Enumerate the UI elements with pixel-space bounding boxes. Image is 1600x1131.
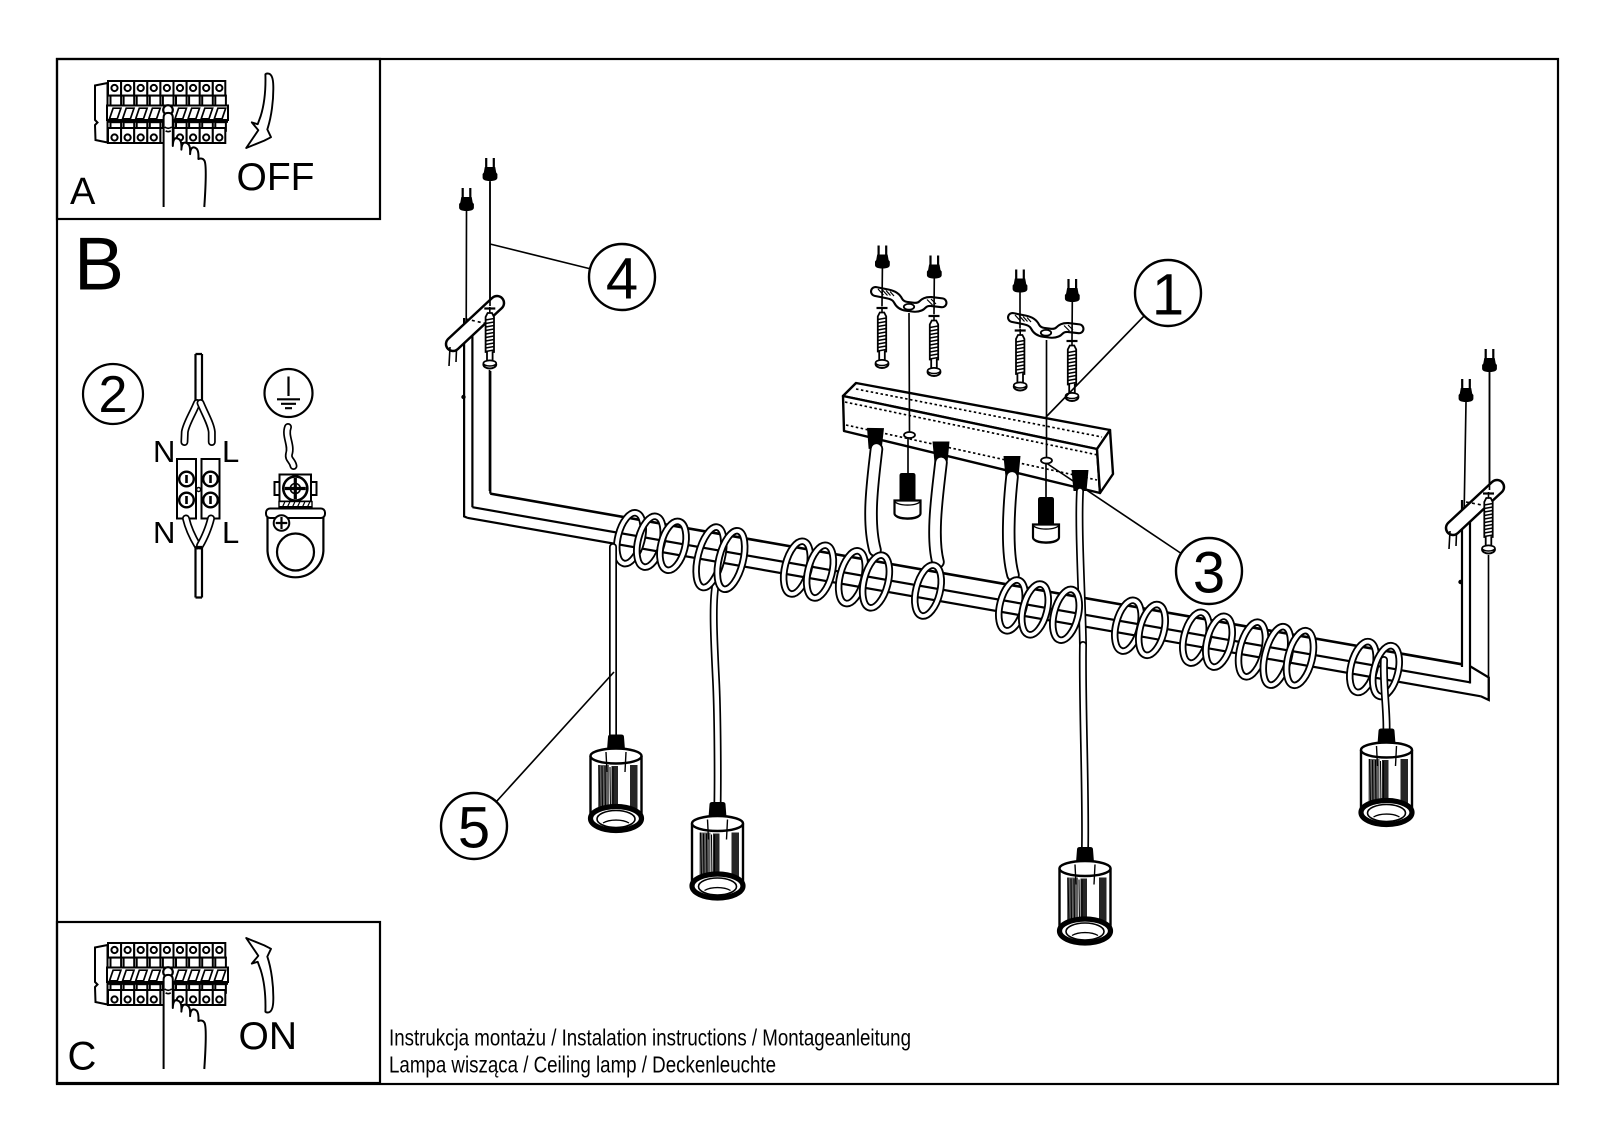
svg-text:Lampa wisząca / Ceiling lamp /: Lampa wisząca / Ceiling lamp / Deckenleu… — [389, 1052, 776, 1078]
svg-text:A: A — [70, 171, 96, 213]
svg-text:Instrukcja montażu / Instalati: Instrukcja montażu / Instalation instruc… — [389, 1025, 911, 1051]
svg-text:N: N — [153, 515, 175, 550]
svg-text:L: L — [222, 434, 239, 469]
svg-text:OFF: OFF — [237, 156, 315, 199]
svg-text:3: 3 — [1193, 541, 1225, 606]
svg-text:N: N — [153, 434, 175, 469]
svg-text:ON: ON — [239, 1015, 298, 1058]
svg-text:C: C — [68, 1035, 97, 1079]
svg-text:B: B — [74, 222, 124, 306]
svg-text:2: 2 — [99, 366, 128, 424]
svg-text:5: 5 — [458, 796, 490, 861]
svg-text:1: 1 — [1152, 263, 1184, 328]
svg-text:L: L — [222, 515, 239, 550]
svg-text:4: 4 — [606, 247, 638, 312]
